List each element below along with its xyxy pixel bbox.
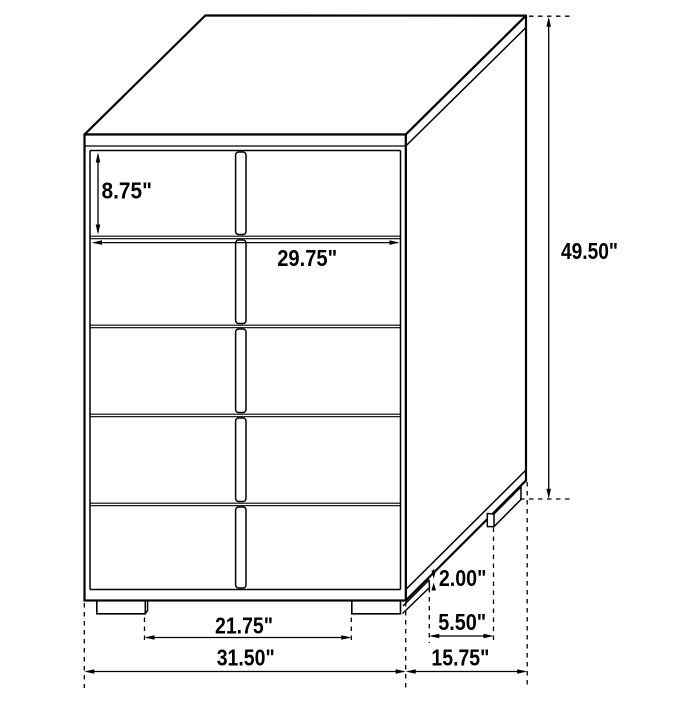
svg-text:8.75": 8.75" xyxy=(102,178,153,204)
svg-text:29.75": 29.75" xyxy=(277,245,337,271)
svg-text:21.75": 21.75" xyxy=(215,612,273,638)
svg-text:2.00": 2.00" xyxy=(439,565,487,591)
svg-text:49.50": 49.50" xyxy=(561,238,618,264)
svg-text:31.50": 31.50" xyxy=(217,645,275,671)
svg-text:15.75": 15.75" xyxy=(431,645,489,671)
svg-text:5.50": 5.50" xyxy=(438,609,486,635)
